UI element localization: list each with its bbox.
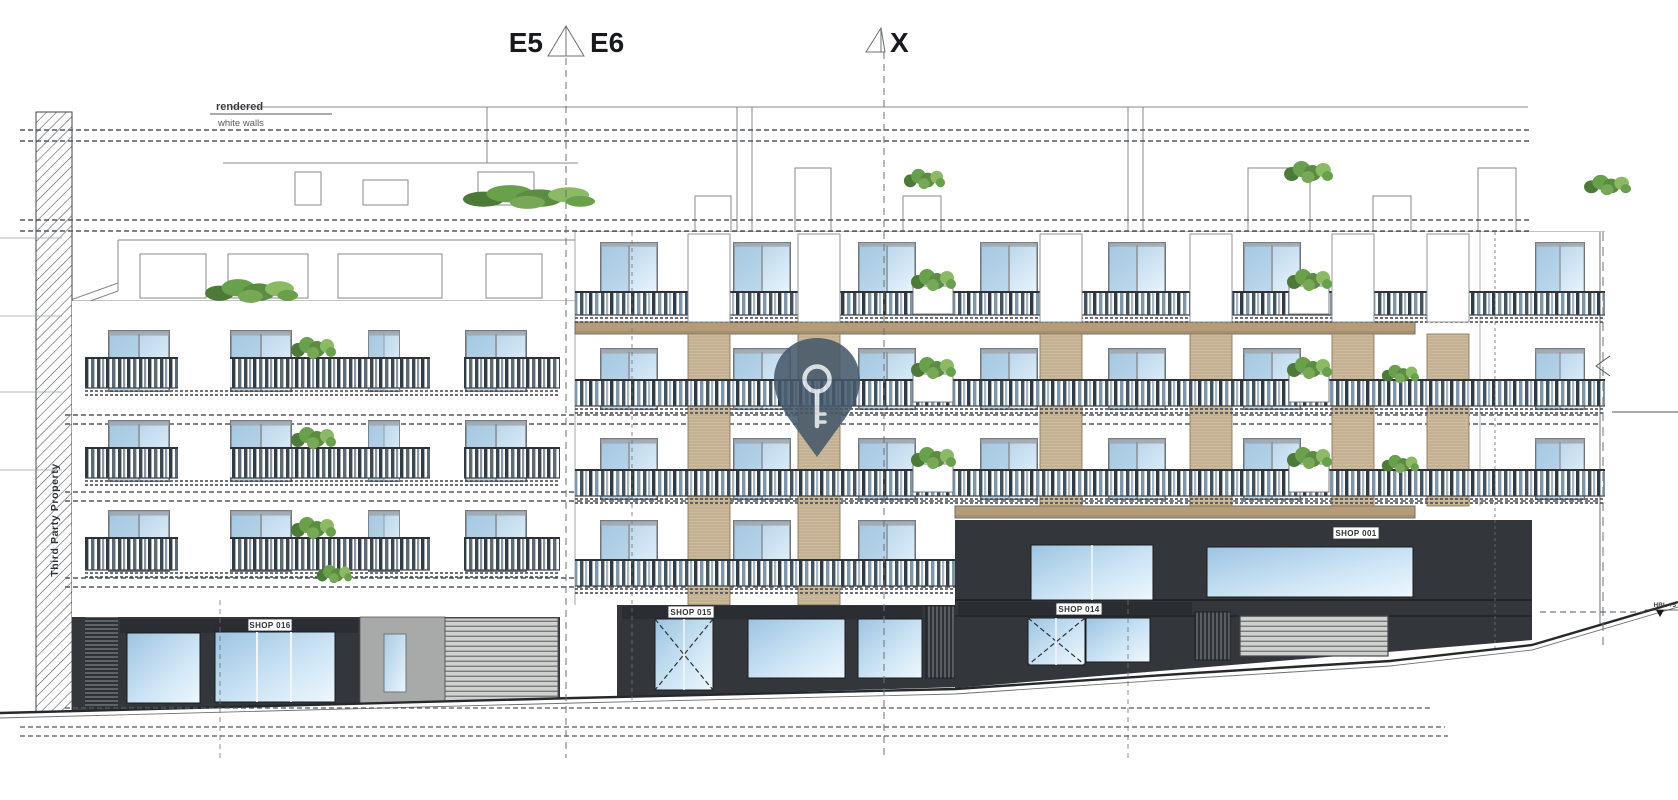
- plant: [911, 357, 956, 402]
- third-party-label: Third Party Property: [49, 463, 61, 577]
- facade-pier: [798, 234, 840, 322]
- note-rendered: rendered: [216, 101, 263, 113]
- note-white-walls: white walls: [217, 118, 264, 129]
- window: [734, 243, 790, 294]
- facade-piers: [688, 234, 1469, 322]
- shop-016-label: SHOP 016: [249, 621, 290, 630]
- plant: [1287, 269, 1332, 314]
- plant: [911, 269, 956, 314]
- third-party-strip: Third Party Property: [36, 112, 72, 712]
- window: [859, 243, 915, 294]
- marker-e5: E5: [509, 27, 543, 58]
- window: [1109, 243, 1165, 294]
- plant: [1287, 447, 1332, 492]
- plant: [1287, 357, 1332, 402]
- facade-pier: [688, 234, 730, 322]
- shop-016: SHOP 016: [72, 617, 560, 710]
- facade-pier: [1190, 234, 1232, 322]
- plant: [1284, 161, 1333, 183]
- plant: [463, 185, 595, 209]
- elevation-drawing: rendered white walls Third Party Propert…: [0, 0, 1678, 800]
- plant: [911, 447, 956, 492]
- section-marker-x: X: [866, 27, 909, 58]
- plant: [1584, 175, 1631, 195]
- level-marker-label: HBL +5: [1654, 602, 1677, 609]
- window: [1536, 243, 1585, 294]
- shop-015: SHOP 015: [617, 605, 960, 697]
- shop-015-label: SHOP 015: [670, 608, 711, 617]
- plant: [904, 169, 945, 189]
- shop-015-door: [655, 619, 713, 690]
- shop-014-door: [1028, 618, 1085, 665]
- plant: [205, 279, 298, 303]
- facade-pier: [1040, 234, 1082, 322]
- window: [981, 243, 1037, 294]
- section-marker-e5-e6: E5 E6: [509, 26, 625, 58]
- facade-pier: [1332, 234, 1374, 322]
- window: [601, 243, 657, 294]
- marker-x: X: [890, 27, 909, 58]
- attic-windows: [140, 254, 542, 298]
- rendered-note: rendered white walls: [210, 101, 332, 129]
- facade-pier: [1427, 234, 1469, 322]
- shop-014-label: SHOP 014: [1058, 605, 1099, 614]
- shop-001-label: SHOP 001: [1335, 529, 1376, 538]
- marker-e6: E6: [590, 27, 624, 58]
